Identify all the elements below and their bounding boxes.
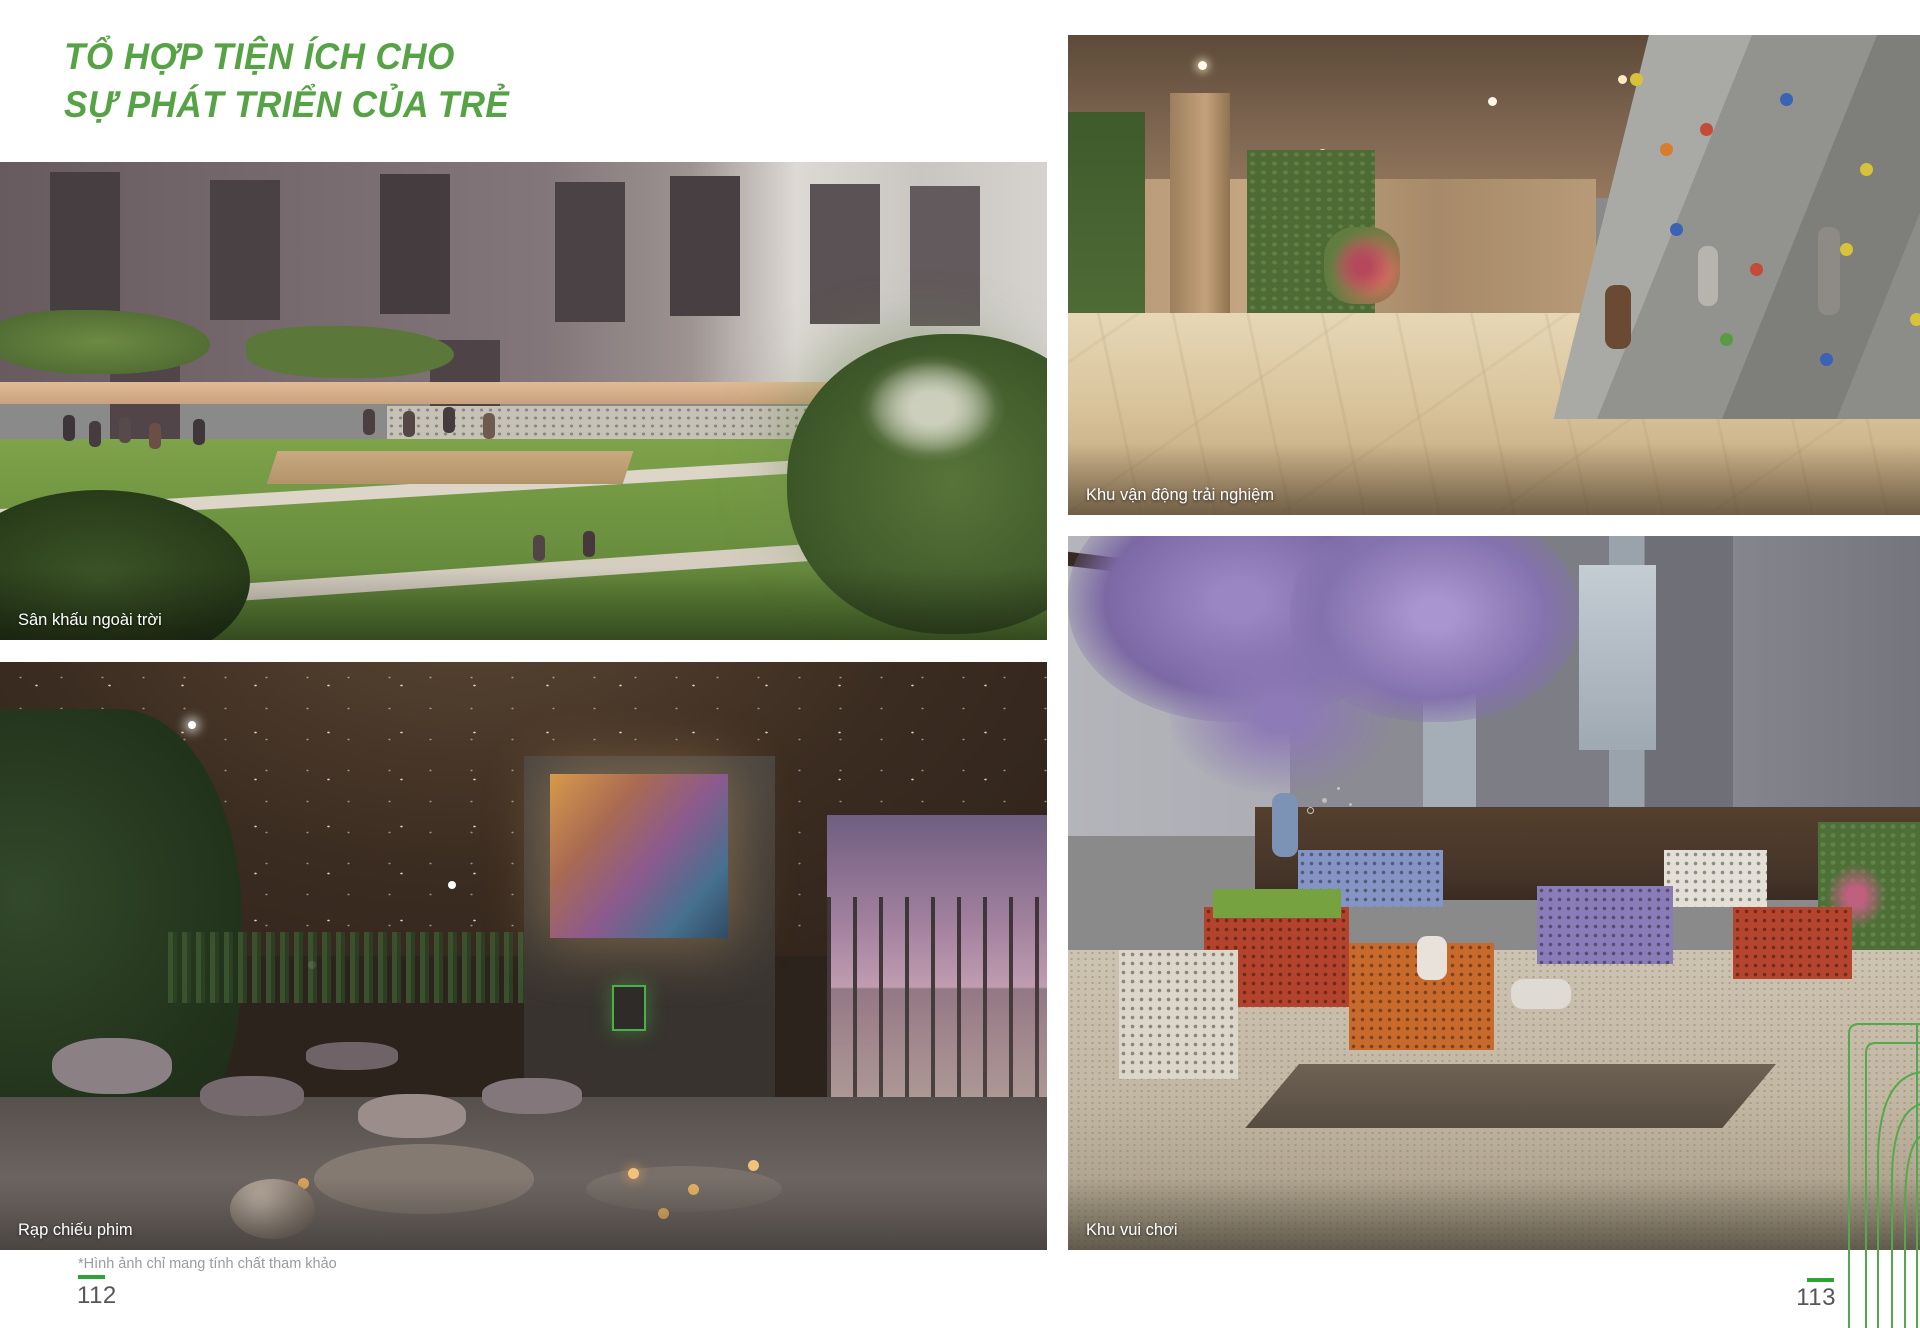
photo-cinema: Rạp chiếu phim (0, 662, 1047, 1250)
audience-silhouettes (63, 415, 75, 441)
brand-lineart-decoration (1740, 1010, 1920, 1328)
wooden-stage (267, 451, 634, 484)
reflective-path (1246, 1064, 1777, 1128)
photo-caption: Sân khấu ngoài trời (18, 611, 162, 630)
photo-caption: Rạp chiếu phim (18, 1221, 133, 1240)
photo-outdoor-stage: Sân khấu ngoài trời (0, 162, 1047, 640)
windows (50, 172, 120, 312)
soap-bubbles (1307, 807, 1314, 814)
caption-scrim (0, 1178, 1047, 1250)
ceiling-lights (1198, 61, 1207, 70)
page-number-rule (78, 1275, 105, 1279)
purple-blossom-canopy (1170, 636, 1392, 793)
bench-cream (1119, 950, 1238, 1079)
page-number-left: 112 (77, 1282, 117, 1310)
bench-red (1733, 907, 1852, 978)
neon-logo (612, 985, 646, 1031)
page-title: TỔ HỢP TIỆN ÍCH CHO SỰ PHÁT TRIỂN CỦA TR… (64, 33, 509, 129)
page-title-line1: TỔ HỢP TIỆN ÍCH CHO (64, 33, 509, 81)
child-silhouette (1417, 936, 1447, 980)
photo-caption: Khu vận động trải nghiệm (1086, 486, 1274, 505)
child-silhouette (1511, 979, 1571, 1009)
person-silhouette (1698, 246, 1718, 306)
bench-purple (1537, 886, 1673, 965)
railing (827, 897, 1047, 1097)
child-silhouette (1272, 793, 1298, 857)
bench-white (1664, 850, 1766, 907)
flowers (1324, 227, 1401, 304)
photo-climbing-wall: Khu vận động trải nghiệm (1068, 35, 1920, 515)
person-silhouette (1605, 285, 1631, 349)
column (1170, 93, 1230, 333)
footnote: *Hình ảnh chỉ mang tính chất tham khảo (78, 1256, 337, 1272)
glass-facade (1579, 565, 1656, 751)
bench-green-top (1213, 889, 1341, 918)
person-silhouette (1818, 227, 1840, 315)
flowering-tree (857, 353, 1007, 463)
photo-caption: Khu vui chơi (1086, 1221, 1178, 1240)
movie-screen (550, 774, 728, 939)
page-title-line2: SỰ PHÁT TRIỂN CỦA TRẺ (64, 81, 509, 129)
beanbag-seats (52, 1038, 172, 1094)
